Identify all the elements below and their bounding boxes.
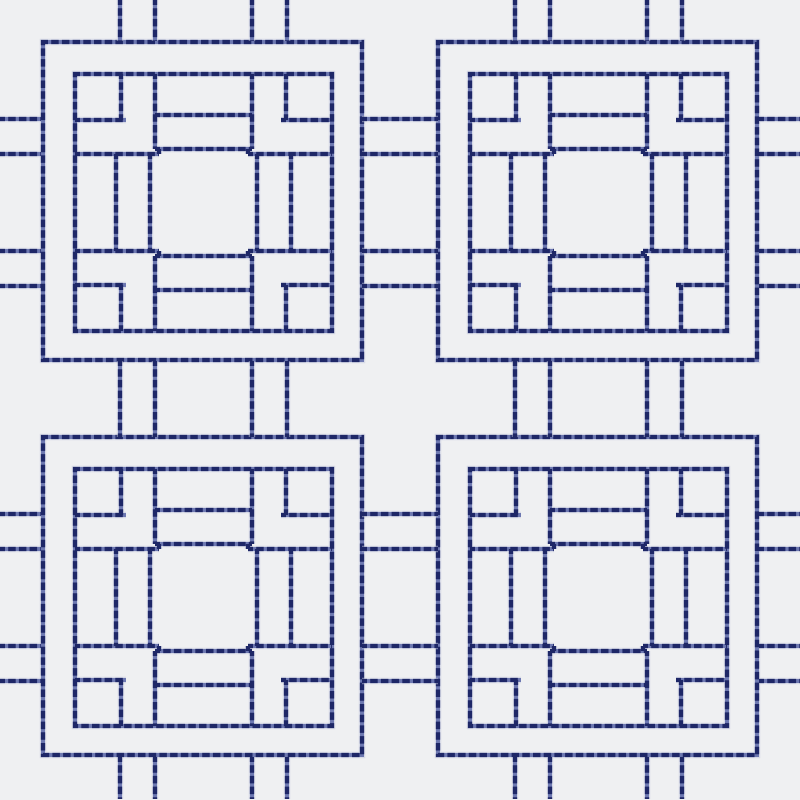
- lattice-motif-top-left: [43, 42, 362, 360]
- sashiko-stitch-pattern: [0, 0, 800, 800]
- thread-base-layer: [438, 42, 757, 360]
- stitch-dash-layer: [438, 437, 757, 755]
- stitch-halo-layer: [438, 437, 757, 755]
- lattice-motif-top-right: [438, 42, 757, 360]
- lattice-motif-bottom-right: [438, 437, 757, 755]
- thread-base-layer: [43, 437, 362, 755]
- thread-base-layer: [438, 437, 757, 755]
- stitch-dash-layer: [438, 42, 757, 360]
- lattice-motif-bottom-left: [43, 437, 362, 755]
- pattern-canvas: [0, 0, 800, 800]
- stitch-halo-layer: [438, 42, 757, 360]
- stitch-halo-layer: [43, 42, 362, 360]
- stitch-halo-layer: [43, 437, 362, 755]
- stitch-dash-layer: [43, 42, 362, 360]
- stitch-dash-layer: [43, 437, 362, 755]
- thread-base-layer: [43, 42, 362, 360]
